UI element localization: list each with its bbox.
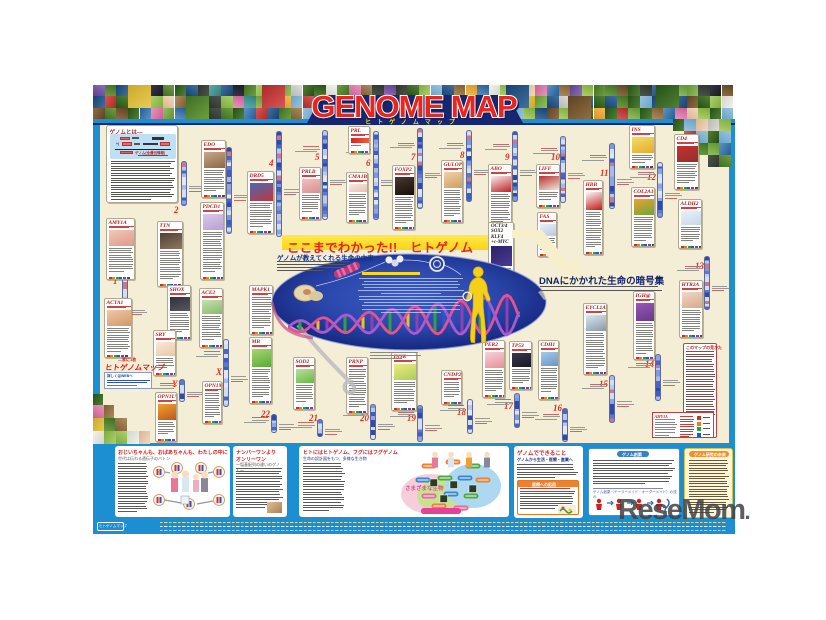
svg-text:さまざまな生物: さまざまな生物 bbox=[405, 484, 444, 492]
